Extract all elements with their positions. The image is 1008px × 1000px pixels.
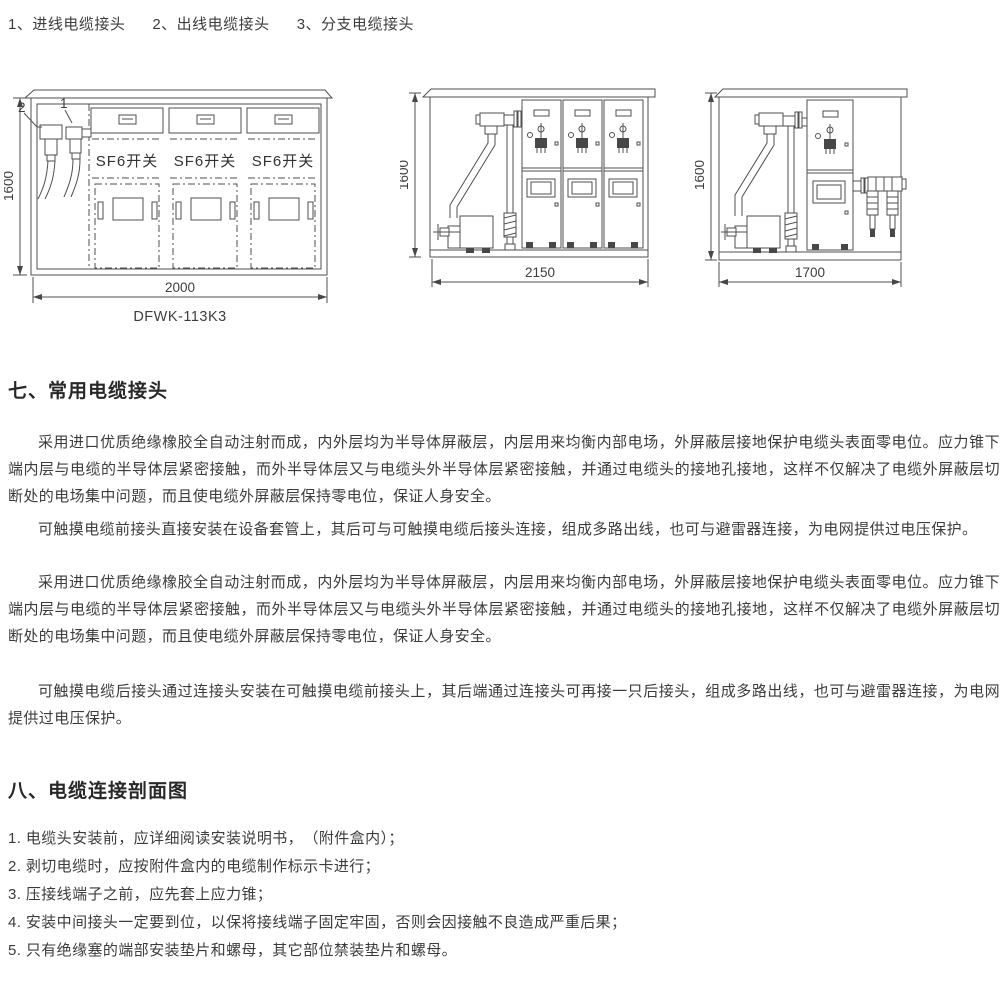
branch-plug-2 [887, 191, 898, 237]
legend-item-incoming: 1、进线电缆接头 [8, 16, 125, 33]
cabinet-roof [25, 90, 332, 98]
legend-item-branch: 3、分支电缆接头 [297, 16, 414, 33]
cable-assembly [721, 112, 807, 253]
step-item-2: 2. 剥切电缆时，应按附件盒内的电缆制作标示卡进行； [8, 853, 1000, 881]
termination-box [721, 216, 780, 253]
model-number-label: DFWK-113K3 [133, 309, 226, 325]
cable-joint [504, 213, 516, 237]
branch-plug-1 [867, 191, 878, 237]
switchgear-bay [807, 100, 853, 250]
cable-joint-legend: 1、进线电缆接头2、出线电缆接头3、分支电缆接头 [8, 13, 441, 34]
sf6-switch-label: SF6开关 [174, 153, 237, 170]
single-height-label: 1600 [695, 160, 707, 190]
section-7-title: 七、常用电缆接头 [8, 378, 1000, 405]
height-dimension: 1600 [4, 98, 27, 275]
section-view-diagram: 1600 [400, 85, 690, 300]
width-dimension: 1700 [719, 262, 901, 287]
sf6-switch-label: SF6开关 [252, 153, 315, 170]
installation-steps: 1. 电缆头安装前，应详细阅读安装说明书， （附件盒内）； 2. 剥切电缆时，应… [8, 825, 1000, 965]
front-view-diagram: 1600 2 1 [4, 85, 354, 333]
paragraph-cable-joint-2: 可触摸电缆前接头直接安装在设备套管上，其后可与可触摸电缆后接头连接，组成多路出线… [8, 516, 1000, 543]
cabinet-diagrams: 1600 2 1 [0, 85, 1008, 335]
single-bay-diagram: 1600 [695, 85, 945, 300]
termination-box [433, 216, 493, 253]
switch-panel-2: SF6开关 [169, 108, 241, 268]
height-dimension: 1600 [695, 93, 717, 260]
paragraph-cable-joint-3: 采用进口优质绝缘橡胶全自动注射而成，内外层均为半导体屏蔽层，内层用来均衡内部电场… [8, 569, 1000, 650]
step-item-3: 3. 压接线端子之前，应先套上应力锥； [8, 881, 1000, 909]
sf6-switch-label: SF6开关 [96, 153, 159, 170]
callout-2-label: 2 [18, 100, 26, 115]
height-dimension: 1600 [400, 93, 421, 257]
text-content: 七、常用电缆接头 采用进口优质绝缘橡胶全自动注射而成，内外层均为半导体屏蔽层，内… [0, 378, 1008, 965]
front-width-label: 2000 [165, 280, 195, 295]
switch-panel-3: SF6开关 [247, 108, 319, 268]
legend-item-outgoing: 2、出线电缆接头 [152, 16, 269, 33]
switchgear-bays [522, 100, 643, 248]
switch-panel-1: SF6开关 [91, 108, 163, 268]
paragraph-cable-joint-4: 可触摸电缆后接头通过连接头安装在可触摸电缆前接头上，其后端通过连接头可再接一只后… [8, 678, 1000, 732]
cable-joint [785, 213, 797, 239]
manual-page: 1、进线电缆接头2、出线电缆接头3、分支电缆接头 1600 [0, 0, 1008, 1000]
front-height-label: 1600 [4, 171, 16, 201]
branch-connector-assembly [853, 177, 906, 237]
step-item-5: 5. 只有绝缘塞的端部安装垫片和螺母，其它部位禁装垫片和螺母。 [8, 937, 1000, 965]
cable-bay: 2 1 [18, 96, 91, 199]
step-item-4: 4. 安装中间接头一定要到位，以保将接线端子固定牢固，否则会因接触不良造成严重后… [8, 909, 1000, 937]
step-item-1: 1. 电缆头安装前，应详细阅读安装说明书， （附件盒内）； [8, 825, 1000, 853]
section-width-label: 2150 [525, 265, 555, 280]
callout-1-label: 1 [60, 96, 68, 111]
cabinet-roof [423, 89, 655, 97]
cabinet-roof [715, 89, 907, 97]
section-height-label: 1600 [400, 160, 411, 190]
width-dimension: 2150 [432, 259, 648, 287]
single-width-label: 1700 [795, 265, 825, 280]
width-dimension: 2000 [33, 277, 327, 303]
cable-assembly [433, 111, 521, 253]
section-8-title: 八、电缆连接剖面图 [8, 778, 1000, 805]
paragraph-cable-joint-1: 采用进口优质绝缘橡胶全自动注射而成，内外层均为半导体屏蔽层，内层用来均衡内部电场… [8, 429, 1000, 510]
